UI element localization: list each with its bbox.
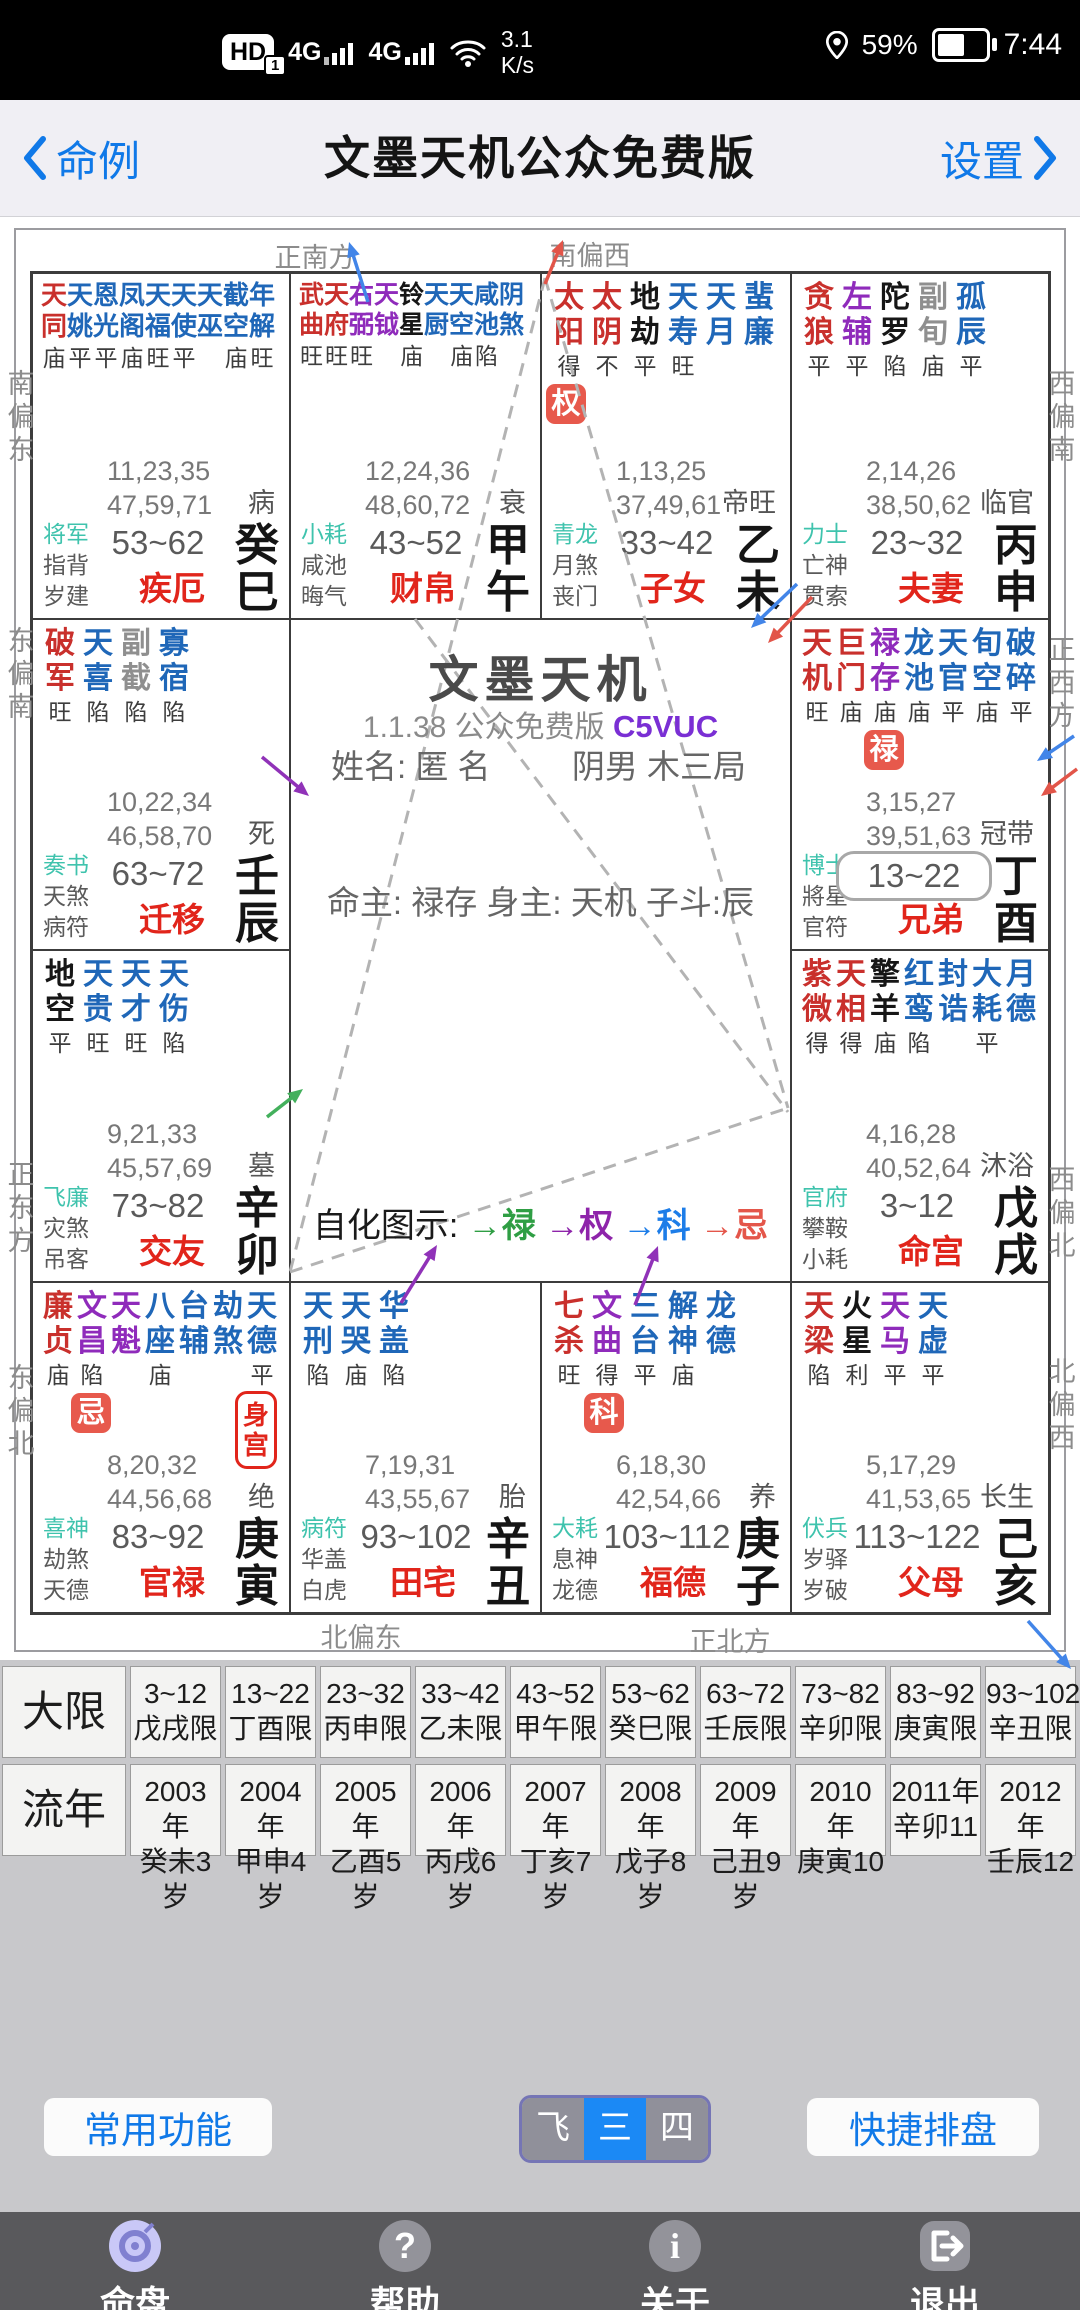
brightness: 陷 [876, 353, 914, 379]
settings-button[interactable]: 设置 [940, 100, 1058, 216]
status-bar: HD1 4G 4G 3.1K/s 59% 7:44 [0, 0, 1080, 100]
palace-cell-you[interactable]: 天机旺巨门庙禄存庙龙池庙天官平旬空庙破碎平禄3,15,2739,51,63冠带博… [791, 619, 1049, 950]
star-孤辰: 孤辰平 [952, 280, 990, 379]
battery-icon [932, 28, 990, 62]
stem-branch: 辛丑 [482, 1516, 534, 1610]
segment-sihua[interactable]: 四化 [646, 2098, 708, 2160]
life-stage: 病 [248, 481, 275, 520]
brightness: 旺 [349, 343, 374, 369]
palace-name: 迁移 [139, 893, 205, 941]
palace-cell-wei[interactable]: 太阳得太阴不地劫平天寿旺天月蜚廉权1,13,2537,49,61帝旺青龙月煞丧门… [541, 273, 791, 619]
star-凤阁: 凤阁庙 [119, 280, 145, 371]
compass-label-正东方: 正东方 [6, 1159, 36, 1258]
star-劫煞: 劫煞 [211, 1289, 245, 1388]
brightness: 得 [550, 353, 588, 379]
compass-label-西偏北: 西偏北 [1047, 1164, 1077, 1263]
brightness: 平 [1004, 699, 1038, 725]
star-list: 天刑陷天哭庙华盖陷 [299, 1289, 413, 1388]
star-恩光: 恩光平 [93, 280, 119, 371]
daxian-row-label: 大限 [2, 1666, 126, 1758]
star-天姚: 天姚平 [67, 280, 93, 371]
star-list: 紫微得天相得擎羊庙红鸾陷封诰大耗平月德 [800, 957, 1038, 1056]
life-stage: 临官 [980, 481, 1034, 520]
star-天魁: 天魁 [109, 1289, 143, 1388]
star-天府: 天府旺 [324, 280, 349, 369]
star-年解: 年解旺 [249, 280, 275, 371]
star-天虚: 天虚平 [914, 1289, 952, 1388]
star-天马: 天马平 [876, 1289, 914, 1388]
brightness: 陷 [79, 699, 117, 725]
brightness [499, 343, 524, 369]
star-封诰: 封诰 [936, 957, 970, 1056]
star-list: 地空平天贵旺天才旺天伤陷 [41, 957, 193, 1056]
brightness: 陷 [299, 1362, 337, 1388]
brightness: 旺 [324, 343, 349, 369]
brightness: 庙 [143, 1362, 177, 1388]
brightness: 平 [970, 1030, 1004, 1056]
brightness [177, 1362, 211, 1388]
star-太阴: 太阴不 [588, 280, 626, 379]
brightness: 陷 [75, 1362, 109, 1388]
palace-cell-chou[interactable]: 天刑陷天哭庙华盖陷7,19,3143,55,67胎病符华盖白虎93~102田宅辛… [290, 1282, 541, 1613]
compass-label-正南方: 正南方 [275, 236, 356, 275]
app-root: HD1 4G 4G 3.1K/s 59% 7:44 [0, 0, 1080, 2310]
brightness: 平 [838, 353, 876, 379]
year-numbers: 8,20,3244,56,68 [107, 1448, 212, 1516]
brightness: 旺 [117, 1030, 155, 1056]
brightness: 利 [838, 1362, 876, 1388]
palace-name: 福德 [640, 1556, 706, 1604]
brightness: 平 [876, 1362, 914, 1388]
liunian-cell[interactable]: 2004年甲申4岁 [225, 1764, 316, 1856]
brightness: 庙 [41, 345, 67, 371]
star-武曲: 武曲旺 [299, 280, 324, 369]
palace-name: 田宅 [390, 1556, 456, 1604]
star-地空: 地空平 [41, 957, 79, 1056]
palace-name: 疾厄 [139, 562, 205, 610]
star-天相: 天相得 [834, 957, 868, 1056]
compass-label-南偏西: 南偏西 [550, 234, 631, 273]
exit-icon [917, 2218, 973, 2274]
nav-label: 关于 [640, 2276, 710, 2310]
star-阴煞: 阴煞 [499, 280, 524, 369]
age-range: 43~52 [341, 524, 491, 562]
star-右弼: 右弼旺 [349, 280, 374, 369]
age-range: 93~102 [341, 1518, 491, 1556]
brightness: 陷 [155, 1030, 193, 1056]
year-numbers: 12,24,3648,60,72 [365, 454, 470, 522]
life-stage: 沐浴 [980, 1144, 1034, 1183]
star-天贵: 天贵旺 [79, 957, 117, 1056]
palace-name: 兄弟 [898, 893, 964, 941]
compass-label-西偏南: 西偏南 [1047, 368, 1077, 467]
brightness [1004, 1030, 1038, 1056]
star-list: 七杀旺文曲得三台平解神庙龙德 [550, 1289, 740, 1388]
palace-name: 夫妻 [898, 562, 964, 610]
brightness [740, 353, 778, 379]
bottom-nav: 命盘?帮助i关于退出 [0, 2212, 1080, 2310]
brightness: 平 [245, 1362, 279, 1388]
palace-cell-zi[interactable]: 七杀旺文曲得三台平解神庙龙德科6,18,3042,54,66养大耗息神龙德103… [541, 1282, 791, 1613]
palace-cell-yin[interactable]: 廉贞庙文昌陷天魁八座庙台辅劫煞天德平忌身宫8,20,3244,56,68绝喜神劫… [32, 1282, 290, 1613]
star-文昌: 文昌陷 [75, 1289, 109, 1388]
star-天官: 天官平 [936, 626, 970, 725]
compass-label-正西方: 正西方 [1047, 634, 1077, 733]
year-numbers: 7,19,3143,55,67 [365, 1448, 470, 1516]
brightness: 平 [93, 345, 119, 371]
brightness: 平 [67, 345, 93, 371]
star-list: 天同庙天姚平恩光平凤阁庙天福旺天使平天巫截空庙年解旺 [41, 280, 275, 371]
compass-label-北偏东: 北偏东 [321, 1616, 402, 1655]
brightness: 旺 [664, 353, 702, 379]
stem-branch: 壬辰 [231, 853, 283, 947]
life-stage: 死 [248, 812, 275, 851]
brightness: 庙 [337, 1362, 375, 1388]
question-icon: ? [377, 2218, 433, 2274]
network-speed: 3.1K/s [501, 26, 534, 78]
star-陀罗: 陀罗陷 [876, 280, 914, 379]
star-破军: 破军旺 [41, 626, 79, 725]
brightness: 平 [626, 1362, 664, 1388]
liunian-cell[interactable]: 2012年壬辰12 [985, 1764, 1076, 1856]
year-numbers: 6,18,3042,54,66 [616, 1448, 721, 1516]
brightness [211, 1362, 245, 1388]
star-廉贞: 廉贞庙 [41, 1289, 75, 1388]
brightness: 庙 [119, 345, 145, 371]
daxian-cell[interactable]: 43~52甲午限 [510, 1666, 601, 1758]
daxian-cell[interactable]: 23~32丙申限 [320, 1666, 411, 1758]
brightness: 平 [800, 353, 838, 379]
life-stage: 帝旺 [722, 481, 776, 520]
star-天寿: 天寿旺 [664, 280, 702, 379]
life-stage: 墓 [248, 1144, 275, 1183]
star-list: 廉贞庙文昌陷天魁八座庙台辅劫煞天德平 [41, 1289, 279, 1388]
star-天厨: 天厨 [424, 280, 449, 369]
star-大耗: 大耗平 [970, 957, 1004, 1056]
brightness: 平 [41, 1030, 79, 1056]
chevron-right-icon [1032, 135, 1058, 181]
brightness [197, 345, 223, 371]
star-天梁: 天梁陷 [800, 1289, 838, 1388]
star-天喜: 天喜陷 [79, 626, 117, 725]
brightness: 庙 [902, 699, 936, 725]
brightness: 旺 [249, 345, 275, 371]
stem-branch: 丙申 [990, 522, 1042, 616]
common-functions-button[interactable]: 常用功能 [44, 2098, 272, 2156]
star-巨门: 巨门庙 [834, 626, 868, 725]
nav-label: 退出 [910, 2276, 980, 2310]
star-副旬: 副旬庙 [914, 280, 952, 379]
liunian-cell[interactable]: 2011年辛卯11 [890, 1764, 981, 1856]
brightness: 庙 [664, 1362, 702, 1388]
compass-label-南偏东: 南偏东 [6, 368, 36, 467]
age-range: 83~92 [83, 1518, 233, 1556]
star-旬空: 旬空庙 [970, 626, 1004, 725]
palace-name: 交友 [139, 1225, 205, 1273]
sihua-badge-权: 权 [546, 384, 586, 424]
life-stage: 长生 [980, 1475, 1034, 1514]
liunian-cell[interactable]: 2006年丙戌6岁 [415, 1764, 506, 1856]
brightness: 得 [800, 1030, 834, 1056]
brightness: 旺 [145, 345, 171, 371]
brightness: 旺 [299, 343, 324, 369]
brightness: 旺 [41, 699, 79, 725]
star-list: 天梁陷火星利天马平天虚平 [800, 1289, 952, 1388]
stem-branch: 乙未 [732, 522, 784, 616]
life-stage: 养 [749, 1475, 776, 1514]
star-贪狼: 贪狼平 [800, 280, 838, 379]
sihua-badge-忌: 忌 [71, 1393, 111, 1433]
star-截空: 截空庙 [223, 280, 249, 371]
star-太阳: 太阳得 [550, 280, 588, 379]
brightness: 旺 [79, 1030, 117, 1056]
age-range: 53~62 [83, 524, 233, 562]
page-title: 文墨天机公众免费版 [0, 100, 1080, 216]
brightness: 庙 [399, 343, 424, 369]
star-月德: 月德 [1004, 957, 1038, 1056]
star-list: 天机旺巨门庙禄存庙龙池庙天官平旬空庙破碎平 [800, 626, 1038, 725]
star-红鸾: 红鸾陷 [902, 957, 936, 1056]
brightness [702, 1362, 740, 1388]
location-icon [826, 31, 848, 59]
star-天月: 天月 [702, 280, 740, 379]
daxian-cell[interactable]: 3~12戊戌限 [130, 1666, 221, 1758]
star-破碎: 破碎平 [1004, 626, 1038, 725]
star-天机: 天机旺 [800, 626, 834, 725]
palace-cell-hai[interactable]: 天梁陷火星利天马平天虚平5,17,2941,53,65长生伏兵岁驿岁破113~1… [791, 1282, 1049, 1613]
star-天伤: 天伤陷 [155, 957, 193, 1056]
quick-chart-button[interactable]: 快捷排盘 [807, 2098, 1039, 2156]
palace-cell-chen[interactable]: 破军旺天喜陷副截陷寡宿陷10,22,3446,58,70死奏书天煞病符63~72… [32, 619, 290, 950]
year-numbers: 2,14,2638,50,62 [866, 454, 971, 522]
star-三台: 三台平 [626, 1289, 664, 1388]
info-icon: i [647, 2218, 703, 2274]
star-天哭: 天哭庙 [337, 1289, 375, 1388]
stem-branch: 辛卯 [231, 1185, 283, 1279]
chart-mode-segmented-control: 飞星三合四化 [519, 2095, 711, 2163]
liunian-cell[interactable]: 2009年己丑9岁 [700, 1764, 791, 1856]
star-火星: 火星利 [838, 1289, 876, 1388]
star-地劫: 地劫平 [626, 280, 664, 379]
star-龙池: 龙池庙 [902, 626, 936, 725]
battery-percent: 59% [862, 29, 918, 61]
app-header: 命例 文墨天机公众免费版 设置 [0, 100, 1080, 217]
year-numbers: 1,13,2537,49,61 [616, 454, 721, 522]
brightness [424, 343, 449, 369]
compass-label-东偏北: 东偏北 [6, 1362, 36, 1461]
palace-cell-shen[interactable]: 贪狼平左辅平陀罗陷副旬庙孤辰平2,14,2638,50,62临官力士亡神贯索23… [791, 273, 1049, 619]
age-range: 113~122 [842, 1518, 992, 1556]
wifi-icon [449, 37, 487, 67]
svg-text:i: i [670, 2226, 680, 2266]
star-七杀: 七杀旺 [550, 1289, 588, 1388]
palace-cell-wu[interactable]: 武曲旺天府旺右弼旺天钺铃星庙天厨天空庙咸池陷阴煞12,24,3648,60,72… [290, 273, 541, 619]
star-台辅: 台辅 [177, 1289, 211, 1388]
palace-name: 财帛 [390, 562, 456, 610]
compass-label-北偏西: 北偏西 [1047, 1356, 1077, 1455]
liunian-cell[interactable]: 2003年癸未3岁 [130, 1764, 221, 1856]
stem-branch: 庚子 [732, 1516, 784, 1610]
daxian-cell[interactable]: 63~72壬辰限 [700, 1666, 791, 1758]
star-天才: 天才旺 [117, 957, 155, 1056]
compass-label-正北方: 正北方 [690, 1620, 771, 1659]
stem-branch: 己亥 [990, 1516, 1042, 1610]
segment-sanhe[interactable]: 三合 [584, 2098, 646, 2160]
brightness: 旺 [800, 699, 834, 725]
signal-4g-icon-2: 4G [368, 39, 434, 65]
brightness [936, 1030, 970, 1056]
brightness: 庙 [970, 699, 1004, 725]
year-numbers: 10,22,3446,58,70 [107, 785, 212, 853]
life-stage: 冠带 [980, 812, 1034, 851]
sihua-badge-禄: 禄 [864, 730, 904, 770]
brightness: 庙 [41, 1362, 75, 1388]
age-range: 23~32 [842, 524, 992, 562]
hd-voice-icon: HD1 [222, 34, 274, 70]
brightness [374, 343, 399, 369]
age-range: 103~112 [592, 1518, 742, 1556]
brightness [109, 1362, 143, 1388]
stem-branch: 戊戌 [990, 1185, 1042, 1279]
nav-item-chart-disc[interactable]: 命盘 [0, 2212, 270, 2310]
liunian-cell[interactable]: 2010年庚寅10 [795, 1764, 886, 1856]
brightness: 得 [834, 1030, 868, 1056]
brightness: 不 [588, 353, 626, 379]
brightness: 平 [171, 345, 197, 371]
brightness: 陷 [902, 1030, 936, 1056]
palace-cell-xu[interactable]: 紫微得天相得擎羊庙红鸾陷封诰大耗平月德4,16,2840,52,64沐浴官府攀鞍… [791, 950, 1049, 1282]
brightness: 陷 [155, 699, 193, 725]
year-numbers: 3,15,2739,51,63 [866, 785, 971, 853]
brightness [702, 353, 740, 379]
brightness: 庙 [834, 699, 868, 725]
nav-label: 帮助 [370, 2276, 440, 2310]
chart-disc-icon [107, 2218, 163, 2274]
star-天使: 天使平 [171, 280, 197, 371]
year-numbers: 4,16,2840,52,64 [866, 1117, 971, 1185]
star-副截: 副截陷 [117, 626, 155, 725]
star-天空: 天空庙 [449, 280, 474, 369]
star-天刑: 天刑陷 [299, 1289, 337, 1388]
year-numbers: 9,21,3345,57,69 [107, 1117, 212, 1185]
life-stage: 胎 [499, 1475, 526, 1514]
brightness: 陷 [474, 343, 499, 369]
brightness: 陷 [800, 1362, 838, 1388]
brightness: 得 [588, 1362, 626, 1388]
year-numbers: 5,17,2941,53,65 [866, 1448, 971, 1516]
year-numbers: 11,23,3547,59,71 [107, 454, 212, 522]
liunian-cell[interactable]: 2005年乙酉5岁 [320, 1764, 411, 1856]
star-蜚廉: 蜚廉 [740, 280, 778, 379]
palace-cell-mao[interactable]: 地空平天贵旺天才旺天伤陷9,21,3345,57,69墓飞廉灾煞吊客73~82交… [32, 950, 290, 1282]
stem-branch: 庚寅 [231, 1516, 283, 1610]
star-紫微: 紫微得 [800, 957, 834, 1056]
shen-gong-badge: 身宫 [235, 1391, 277, 1469]
star-list: 贪狼平左辅平陀罗陷副旬庙孤辰平 [800, 280, 990, 379]
brightness: 庙 [223, 345, 249, 371]
star-天福: 天福旺 [145, 280, 171, 371]
star-龙德: 龙德 [702, 1289, 740, 1388]
brightness: 旺 [550, 1362, 588, 1388]
signal-4g-icon-1: 4G [288, 39, 354, 65]
nav-item-info[interactable]: i关于 [540, 2212, 810, 2310]
star-天钺: 天钺 [374, 280, 399, 369]
daxian-cell[interactable]: 73~82辛卯限 [795, 1666, 886, 1758]
brightness: 庙 [868, 699, 902, 725]
segment-feixing[interactable]: 飞星 [522, 2098, 584, 2160]
palace-name: 子女 [640, 562, 706, 610]
brightness: 庙 [914, 353, 952, 379]
life-stage: 绝 [248, 1475, 275, 1514]
star-list: 破军旺天喜陷副截陷寡宿陷 [41, 626, 193, 725]
star-禄存: 禄存庙 [868, 626, 902, 725]
nav-item-question[interactable]: ?帮助 [270, 2212, 540, 2310]
palace-name: 命宫 [898, 1225, 964, 1273]
age-range: 63~72 [83, 855, 233, 893]
age-range: 3~12 [842, 1187, 992, 1225]
compass-label-东偏南: 东偏南 [6, 625, 36, 724]
liunian-cell[interactable]: 2007年丁亥7岁 [510, 1764, 601, 1856]
brightness: 平 [626, 353, 664, 379]
stem-branch: 癸巳 [231, 522, 283, 616]
star-解神: 解神庙 [664, 1289, 702, 1388]
brightness: 平 [936, 699, 970, 725]
brightness: 庙 [868, 1030, 902, 1056]
daxian-cell[interactable]: 13~22丁酉限 [225, 1666, 316, 1758]
nav-item-exit[interactable]: 退出 [810, 2212, 1080, 2310]
daxian-cell[interactable]: 53~62癸巳限 [605, 1666, 696, 1758]
star-左辅: 左辅平 [838, 280, 876, 379]
star-咸池: 咸池陷 [474, 280, 499, 369]
star-擎羊: 擎羊庙 [868, 957, 902, 1056]
star-文曲: 文曲得 [588, 1289, 626, 1388]
star-天德: 天德平 [245, 1289, 279, 1388]
brightness: 庙 [449, 343, 474, 369]
star-华盖: 华盖陷 [375, 1289, 413, 1388]
life-stage: 衰 [499, 481, 526, 520]
daxian-cell[interactable]: 83~92庚寅限 [890, 1666, 981, 1758]
clock: 7:44 [1004, 28, 1062, 62]
star-天同: 天同庙 [41, 280, 67, 371]
palace-name: 官禄 [139, 1556, 205, 1604]
age-range: 73~82 [83, 1187, 233, 1225]
star-铃星: 铃星庙 [399, 280, 424, 369]
palace-name: 父母 [898, 1556, 964, 1604]
brightness: 平 [914, 1362, 952, 1388]
liunian-cell[interactable]: 2008年戊子8岁 [605, 1764, 696, 1856]
palace-cell-si[interactable]: 天同庙天姚平恩光平凤阁庙天福旺天使平天巫截空庙年解旺11,23,3547,59,… [32, 273, 290, 619]
brightness: 平 [952, 353, 990, 379]
daxian-cell[interactable]: 93~102辛丑限 [985, 1666, 1076, 1758]
star-八座: 八座庙 [143, 1289, 177, 1388]
age-range: 33~42 [592, 524, 742, 562]
liunian-row-label: 流年 [2, 1764, 126, 1856]
stem-branch: 丁酉 [990, 853, 1042, 947]
brightness: 陷 [117, 699, 155, 725]
star-寡宿: 寡宿陷 [155, 626, 193, 725]
brightness: 陷 [375, 1362, 413, 1388]
daxian-cell[interactable]: 33~42乙未限 [415, 1666, 506, 1758]
svg-text:?: ? [394, 2225, 416, 2266]
star-list: 太阳得太阴不地劫平天寿旺天月蜚廉 [550, 280, 778, 379]
stem-branch: 甲午 [482, 522, 534, 616]
nav-label: 命盘 [100, 2276, 170, 2310]
sihua-badge-科: 科 [584, 1393, 624, 1433]
star-天巫: 天巫 [197, 280, 223, 371]
star-list: 武曲旺天府旺右弼旺天钺铃星庙天厨天空庙咸池陷阴煞 [299, 280, 524, 369]
